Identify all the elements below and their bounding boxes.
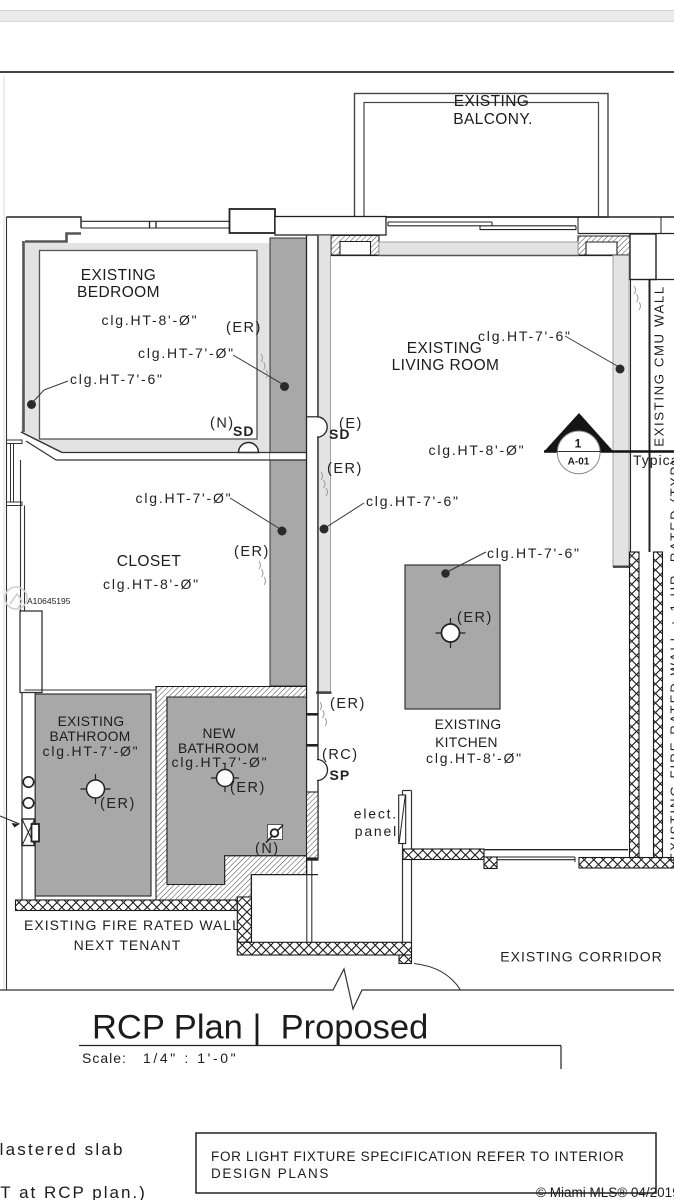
svg-text:HT at RCP plan.): HT at RCP plan.) xyxy=(0,1183,147,1200)
svg-text:EXISTING: EXISTING xyxy=(454,93,530,110)
svg-text:SD: SD xyxy=(233,423,254,439)
svg-text:A-01: A-01 xyxy=(568,457,590,468)
svg-text:SD: SD xyxy=(329,426,350,442)
svg-text:NEXT TENANT: NEXT TENANT xyxy=(74,937,182,953)
svg-text:clg.HT-7'-6": clg.HT-7'-6" xyxy=(478,328,572,344)
svg-text:panel: panel xyxy=(355,823,398,839)
svg-text:clg.HT-7'-Ø": clg.HT-7'-Ø" xyxy=(43,743,140,759)
svg-text:EXISTING CMU WALL: EXISTING CMU WALL xyxy=(652,285,667,447)
svg-text:clg.HT-7'-Ø": clg.HT-7'-Ø" xyxy=(138,345,235,361)
svg-text:BATHROOM: BATHROOM xyxy=(49,729,130,744)
svg-text:1/4" : 1'-0": 1/4" : 1'-0" xyxy=(143,1050,238,1066)
svg-text:EXISTING: EXISTING xyxy=(435,717,502,732)
svg-text:clg.HT-7'-Ø": clg.HT-7'-Ø" xyxy=(136,490,233,506)
svg-text:CLOSET: CLOSET xyxy=(117,553,182,570)
svg-text:(ER): (ER) xyxy=(327,461,363,477)
svg-text:RCP Plan | Proposed: RCP Plan | Proposed xyxy=(92,1009,428,1047)
svg-text:plastered slab: plastered slab xyxy=(0,1140,125,1159)
svg-text:LIVING ROOM: LIVING ROOM xyxy=(392,357,500,374)
svg-text:(RC): (RC) xyxy=(322,747,359,763)
svg-text:BEDROOM: BEDROOM xyxy=(77,284,160,301)
svg-text:EXISTING: EXISTING xyxy=(58,714,125,729)
svg-text:FOR LIGHT FIXTURE SPECIFICATIO: FOR LIGHT FIXTURE SPECIFICATION REFER TO… xyxy=(211,1149,625,1164)
svg-text:Scale:: Scale: xyxy=(82,1050,127,1066)
svg-text:EXISTING CORRIDOR: EXISTING CORRIDOR xyxy=(500,949,662,965)
svg-text:clg.HT-8'-Ø": clg.HT-8'-Ø" xyxy=(426,750,523,766)
svg-text:(ER): (ER) xyxy=(457,610,493,626)
svg-text:A10645195: A10645195 xyxy=(27,596,71,606)
svg-text:1: 1 xyxy=(575,437,582,451)
svg-text:KITCHEN: KITCHEN xyxy=(435,735,498,750)
svg-text:clg.HT-7'-6": clg.HT-7'-6" xyxy=(70,371,164,387)
svg-text:(ER): (ER) xyxy=(330,696,366,712)
svg-text:(ER): (ER) xyxy=(100,796,136,812)
svg-text:SP: SP xyxy=(330,767,351,783)
svg-text:clg.HT-7'-Ø": clg.HT-7'-Ø" xyxy=(172,754,269,770)
svg-text:BALCONY.: BALCONY. xyxy=(453,111,533,128)
svg-text:clg.HT-7'-6": clg.HT-7'-6" xyxy=(487,545,581,561)
svg-text:clg.HT-8'-Ø": clg.HT-8'-Ø" xyxy=(103,576,200,592)
svg-text:clg.HT-8'-Ø": clg.HT-8'-Ø" xyxy=(102,312,199,328)
svg-text:(ER): (ER) xyxy=(230,780,266,796)
svg-text:(ER): (ER) xyxy=(234,544,270,560)
svg-text:EXISTING: EXISTING xyxy=(407,340,483,357)
svg-text:EXISTING FIRE RATED WALL: EXISTING FIRE RATED WALL xyxy=(24,917,241,933)
svg-text:clg.HT-7'-6": clg.HT-7'-6" xyxy=(366,493,460,509)
svg-text:(N): (N) xyxy=(255,841,280,857)
svg-text:© Miami MLS® 04/2019: © Miami MLS® 04/2019 xyxy=(536,1185,674,1200)
svg-text:(N): (N) xyxy=(210,416,235,432)
svg-text:EXISTING FIRE RATED WALL + 1 H: EXISTING FIRE RATED WALL + 1 HR. RATED (… xyxy=(668,458,674,861)
svg-text:EXISTING: EXISTING xyxy=(81,267,157,284)
svg-text:elect.: elect. xyxy=(354,806,398,822)
svg-text:clg.HT-8'-Ø": clg.HT-8'-Ø" xyxy=(429,442,526,458)
svg-text:DESIGN PLANS: DESIGN PLANS xyxy=(211,1166,330,1181)
svg-text:NEW: NEW xyxy=(202,726,235,741)
svg-text:(ER): (ER) xyxy=(226,320,262,336)
